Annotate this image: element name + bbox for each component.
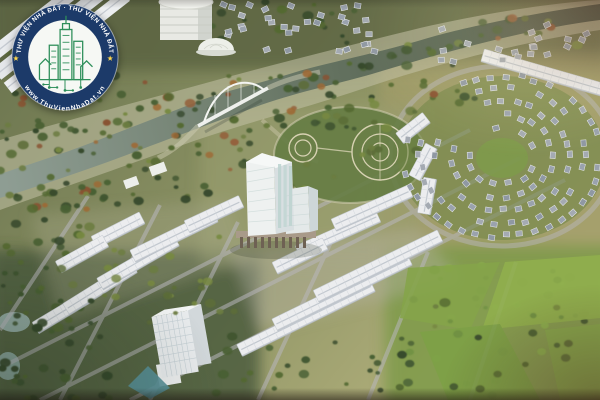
tree bbox=[165, 253, 174, 260]
tree bbox=[236, 77, 241, 81]
tree bbox=[196, 101, 202, 105]
tree bbox=[375, 371, 380, 375]
tree bbox=[530, 313, 537, 318]
cylindrical-building bbox=[159, 0, 213, 40]
villa bbox=[362, 17, 369, 23]
tree bbox=[11, 366, 19, 372]
tree bbox=[63, 181, 70, 186]
villa bbox=[366, 32, 372, 37]
tree bbox=[43, 266, 49, 270]
villa bbox=[507, 84, 514, 90]
tree bbox=[227, 332, 237, 340]
tree bbox=[60, 374, 71, 383]
tree bbox=[67, 126, 74, 132]
tree bbox=[344, 382, 348, 386]
villa bbox=[420, 164, 426, 171]
tree bbox=[18, 141, 29, 150]
tree bbox=[217, 9, 227, 17]
tree bbox=[370, 355, 376, 360]
tree bbox=[333, 113, 341, 119]
villa bbox=[514, 54, 521, 60]
tree bbox=[246, 128, 252, 133]
tree bbox=[273, 109, 280, 115]
tree bbox=[301, 356, 310, 363]
tree bbox=[455, 99, 464, 106]
tree bbox=[325, 91, 334, 98]
villa bbox=[451, 145, 457, 152]
tree bbox=[33, 238, 43, 246]
tree bbox=[65, 339, 74, 346]
tree bbox=[13, 271, 19, 276]
tree bbox=[37, 319, 47, 327]
tree bbox=[53, 131, 60, 137]
tree bbox=[302, 11, 313, 20]
tree bbox=[478, 19, 487, 26]
villa bbox=[497, 98, 504, 104]
villa bbox=[304, 19, 311, 25]
tree bbox=[59, 369, 65, 374]
villa bbox=[265, 15, 272, 21]
villa bbox=[484, 99, 491, 105]
tree bbox=[163, 292, 172, 299]
tree bbox=[54, 237, 65, 245]
tree bbox=[143, 80, 148, 84]
villa bbox=[475, 88, 482, 94]
tree bbox=[230, 139, 239, 146]
tree bbox=[381, 124, 392, 133]
villa bbox=[285, 30, 292, 36]
tree bbox=[146, 159, 151, 163]
tree bbox=[331, 175, 336, 179]
tree bbox=[272, 386, 277, 390]
villa bbox=[503, 232, 510, 237]
tree bbox=[493, 371, 501, 378]
tree bbox=[303, 162, 310, 168]
tree bbox=[311, 120, 320, 127]
tree bbox=[492, 26, 502, 34]
tree bbox=[88, 298, 95, 303]
tree bbox=[192, 301, 198, 306]
tree bbox=[476, 385, 485, 392]
villa bbox=[503, 195, 510, 201]
villa bbox=[405, 136, 411, 143]
tree bbox=[344, 104, 355, 113]
tree bbox=[7, 250, 16, 257]
tree bbox=[358, 63, 366, 69]
tree bbox=[132, 151, 142, 159]
tree bbox=[507, 14, 517, 22]
tree bbox=[103, 119, 111, 125]
tree bbox=[459, 44, 464, 48]
tree bbox=[164, 93, 174, 101]
tree bbox=[1, 284, 6, 288]
tree bbox=[5, 123, 11, 128]
tree bbox=[553, 305, 560, 311]
tree bbox=[94, 181, 102, 187]
tree bbox=[241, 378, 247, 383]
tree bbox=[111, 248, 117, 253]
tree bbox=[280, 123, 287, 129]
tree bbox=[100, 194, 108, 201]
tree bbox=[352, 127, 357, 131]
villa bbox=[371, 48, 378, 55]
tree bbox=[74, 203, 80, 208]
tree bbox=[228, 168, 232, 172]
villa bbox=[516, 231, 523, 237]
tree bbox=[8, 301, 12, 305]
tree bbox=[88, 321, 93, 325]
villa bbox=[567, 151, 573, 158]
tree bbox=[430, 91, 439, 98]
tree bbox=[11, 220, 21, 228]
tree bbox=[173, 311, 178, 315]
tree bbox=[426, 47, 432, 52]
tree bbox=[172, 286, 177, 290]
tree bbox=[377, 388, 383, 393]
tree bbox=[177, 111, 185, 117]
villa bbox=[281, 24, 288, 29]
tree bbox=[138, 146, 143, 150]
villa bbox=[527, 51, 534, 57]
tree bbox=[42, 191, 49, 196]
tree bbox=[312, 3, 316, 7]
tree bbox=[2, 271, 8, 276]
tree bbox=[230, 308, 237, 314]
tree bbox=[432, 324, 437, 328]
tree bbox=[151, 100, 158, 106]
tree bbox=[216, 309, 223, 315]
tree bbox=[83, 192, 89, 196]
tree bbox=[388, 83, 394, 87]
tree bbox=[14, 374, 20, 379]
tree bbox=[18, 260, 24, 265]
villa bbox=[504, 179, 511, 185]
tree bbox=[102, 371, 113, 380]
tree bbox=[212, 389, 221, 396]
tree bbox=[94, 140, 98, 144]
tree bbox=[408, 341, 415, 346]
tree bbox=[41, 217, 48, 223]
tree bbox=[13, 321, 18, 325]
tree bbox=[0, 358, 11, 367]
tree bbox=[203, 278, 213, 286]
villa bbox=[471, 231, 478, 238]
tree bbox=[172, 176, 179, 181]
tree bbox=[340, 34, 344, 38]
tree bbox=[122, 122, 130, 129]
tree bbox=[58, 299, 63, 303]
tree bbox=[149, 266, 159, 274]
tree bbox=[368, 145, 375, 151]
tree bbox=[20, 285, 25, 289]
tree bbox=[559, 315, 564, 319]
tree bbox=[371, 120, 378, 125]
villa bbox=[432, 152, 438, 159]
tree bbox=[14, 313, 21, 319]
tree bbox=[475, 335, 482, 341]
tree bbox=[283, 85, 293, 93]
villa bbox=[488, 235, 495, 241]
tree bbox=[33, 128, 39, 133]
tree bbox=[446, 44, 454, 50]
tree bbox=[59, 122, 68, 129]
tree bbox=[367, 368, 373, 372]
tree bbox=[102, 294, 107, 298]
tree bbox=[196, 94, 204, 100]
tree bbox=[111, 294, 120, 301]
tree bbox=[325, 122, 335, 130]
tree bbox=[483, 306, 488, 310]
tree bbox=[39, 364, 49, 372]
tree bbox=[168, 145, 175, 150]
tree bbox=[114, 201, 121, 207]
tree bbox=[68, 281, 77, 288]
tree bbox=[126, 164, 132, 169]
tree bbox=[537, 348, 546, 355]
tree bbox=[226, 74, 231, 78]
tree bbox=[185, 99, 196, 108]
tree bbox=[147, 320, 152, 324]
tree bbox=[528, 329, 537, 336]
tree bbox=[303, 70, 312, 78]
tree bbox=[453, 330, 463, 338]
tree bbox=[118, 249, 126, 255]
tree bbox=[554, 343, 560, 348]
tree bbox=[13, 194, 22, 201]
tree bbox=[266, 345, 274, 351]
tree bbox=[142, 167, 149, 173]
tree bbox=[263, 123, 270, 128]
tree bbox=[76, 224, 83, 229]
tree bbox=[174, 185, 179, 189]
tree bbox=[471, 96, 477, 101]
villa bbox=[490, 221, 497, 227]
villa bbox=[545, 139, 552, 146]
tree bbox=[49, 189, 57, 196]
tree bbox=[78, 184, 85, 190]
tree bbox=[66, 169, 71, 173]
tree bbox=[37, 144, 43, 149]
tree bbox=[241, 135, 246, 139]
tree bbox=[57, 265, 67, 273]
tree bbox=[329, 11, 334, 15]
tree bbox=[397, 351, 407, 359]
tree bbox=[171, 133, 179, 139]
tree bbox=[285, 363, 291, 368]
tree bbox=[433, 304, 439, 309]
tree bbox=[107, 134, 113, 138]
tree bbox=[399, 337, 404, 341]
tree bbox=[401, 61, 412, 70]
tree bbox=[495, 36, 501, 41]
tree bbox=[299, 370, 309, 378]
tree bbox=[246, 141, 253, 147]
villa bbox=[499, 57, 505, 62]
tree bbox=[375, 146, 383, 153]
tree bbox=[19, 165, 26, 171]
villa bbox=[581, 140, 587, 147]
tree bbox=[287, 108, 296, 115]
villa bbox=[340, 4, 347, 10]
tree bbox=[42, 203, 48, 208]
tree bbox=[222, 347, 232, 355]
tree bbox=[317, 83, 325, 89]
tree bbox=[23, 375, 27, 379]
tree bbox=[455, 89, 460, 93]
tree bbox=[347, 62, 352, 66]
villa bbox=[354, 3, 361, 9]
tree bbox=[332, 80, 338, 85]
tree bbox=[111, 275, 121, 283]
tree bbox=[439, 298, 450, 307]
tree bbox=[136, 105, 144, 112]
tree bbox=[27, 204, 38, 213]
villa bbox=[503, 74, 510, 80]
tree bbox=[370, 101, 380, 109]
tree bbox=[205, 152, 213, 158]
tree bbox=[564, 340, 573, 347]
tree bbox=[38, 285, 44, 290]
villa bbox=[440, 48, 447, 54]
tree bbox=[60, 205, 71, 214]
tree bbox=[198, 279, 204, 284]
tree bbox=[277, 74, 283, 79]
watermark-logo: THƯ VIỆN NHÀ ĐẤT · THƯ VIỆN NHÀ ĐẤT www.… bbox=[10, 2, 120, 112]
tree bbox=[6, 150, 17, 159]
tree bbox=[450, 383, 459, 390]
tree bbox=[344, 41, 349, 45]
tree bbox=[274, 114, 285, 123]
tree bbox=[195, 142, 201, 147]
tree bbox=[83, 206, 90, 211]
villa bbox=[508, 219, 515, 225]
tree bbox=[6, 192, 14, 199]
tree bbox=[192, 107, 198, 112]
tree bbox=[298, 81, 309, 90]
tree bbox=[268, 76, 273, 80]
tree bbox=[387, 52, 397, 60]
tree bbox=[18, 292, 24, 297]
tree bbox=[131, 193, 136, 197]
logo-star-right-icon: ★ bbox=[106, 55, 113, 62]
tower-main-front bbox=[246, 156, 276, 236]
villa bbox=[583, 151, 589, 158]
tree bbox=[253, 86, 258, 90]
villa bbox=[550, 152, 556, 159]
villa bbox=[485, 207, 492, 213]
villa bbox=[292, 26, 299, 32]
tree bbox=[419, 82, 427, 89]
tree bbox=[396, 384, 404, 390]
tree bbox=[247, 370, 254, 375]
tree bbox=[403, 379, 413, 387]
tree bbox=[82, 129, 88, 133]
tree bbox=[35, 118, 41, 123]
tree bbox=[325, 105, 332, 111]
tree bbox=[76, 232, 85, 239]
tree bbox=[37, 133, 47, 141]
tree bbox=[196, 151, 202, 156]
tree bbox=[448, 319, 453, 323]
tree bbox=[218, 370, 229, 379]
tree bbox=[23, 311, 28, 315]
villa bbox=[467, 152, 473, 159]
tree bbox=[374, 360, 382, 366]
tree bbox=[277, 5, 287, 13]
tree bbox=[401, 46, 412, 55]
tree bbox=[113, 118, 123, 126]
tree bbox=[131, 143, 138, 149]
villa bbox=[594, 164, 600, 171]
tree bbox=[405, 360, 414, 367]
aerial-render-photo: THƯ VIỆN NHÀ ĐẤT · THƯ VIỆN NHÀ ĐẤT www.… bbox=[0, 0, 600, 400]
tree bbox=[478, 33, 483, 37]
villa bbox=[515, 206, 522, 213]
tree bbox=[323, 75, 330, 81]
tree bbox=[522, 362, 529, 367]
tree bbox=[3, 243, 11, 249]
tree bbox=[412, 110, 417, 114]
tree bbox=[216, 235, 222, 240]
villa bbox=[500, 206, 507, 212]
villa bbox=[438, 57, 445, 63]
tree bbox=[84, 222, 95, 231]
villa bbox=[504, 111, 510, 116]
tree bbox=[78, 148, 84, 153]
tree bbox=[148, 280, 155, 286]
tree bbox=[203, 189, 213, 197]
tree bbox=[165, 109, 171, 114]
tree bbox=[4, 137, 9, 141]
tree bbox=[541, 322, 549, 329]
tree bbox=[100, 130, 107, 135]
tree bbox=[351, 9, 357, 14]
tree bbox=[86, 345, 92, 350]
tree bbox=[12, 379, 18, 384]
tree bbox=[55, 147, 61, 152]
tree bbox=[275, 372, 283, 378]
tree bbox=[292, 87, 299, 93]
tree bbox=[37, 184, 46, 191]
tree bbox=[49, 329, 55, 333]
tree bbox=[220, 132, 229, 139]
tree bbox=[181, 195, 191, 203]
tree bbox=[104, 180, 111, 186]
villa bbox=[564, 140, 570, 147]
villa bbox=[415, 151, 420, 158]
villa bbox=[490, 85, 497, 91]
tree bbox=[200, 183, 208, 190]
villa bbox=[353, 28, 360, 34]
tree bbox=[69, 326, 75, 331]
tree bbox=[47, 174, 55, 180]
tree bbox=[205, 299, 216, 308]
tree bbox=[561, 354, 571, 362]
villa bbox=[530, 44, 537, 50]
tree bbox=[344, 125, 349, 129]
tree bbox=[322, 113, 330, 120]
tree bbox=[177, 123, 184, 129]
tree bbox=[237, 147, 243, 152]
tree bbox=[123, 112, 128, 116]
tree bbox=[154, 175, 161, 180]
tree bbox=[91, 152, 96, 156]
villa bbox=[336, 48, 343, 54]
tree bbox=[198, 285, 205, 291]
logo-star-left-icon: ★ bbox=[12, 55, 19, 62]
tree bbox=[97, 334, 103, 339]
logo-badge: THƯ VIỆN NHÀ ĐẤT · THƯ VIỆN NHÀ ĐẤT www.… bbox=[10, 2, 120, 112]
